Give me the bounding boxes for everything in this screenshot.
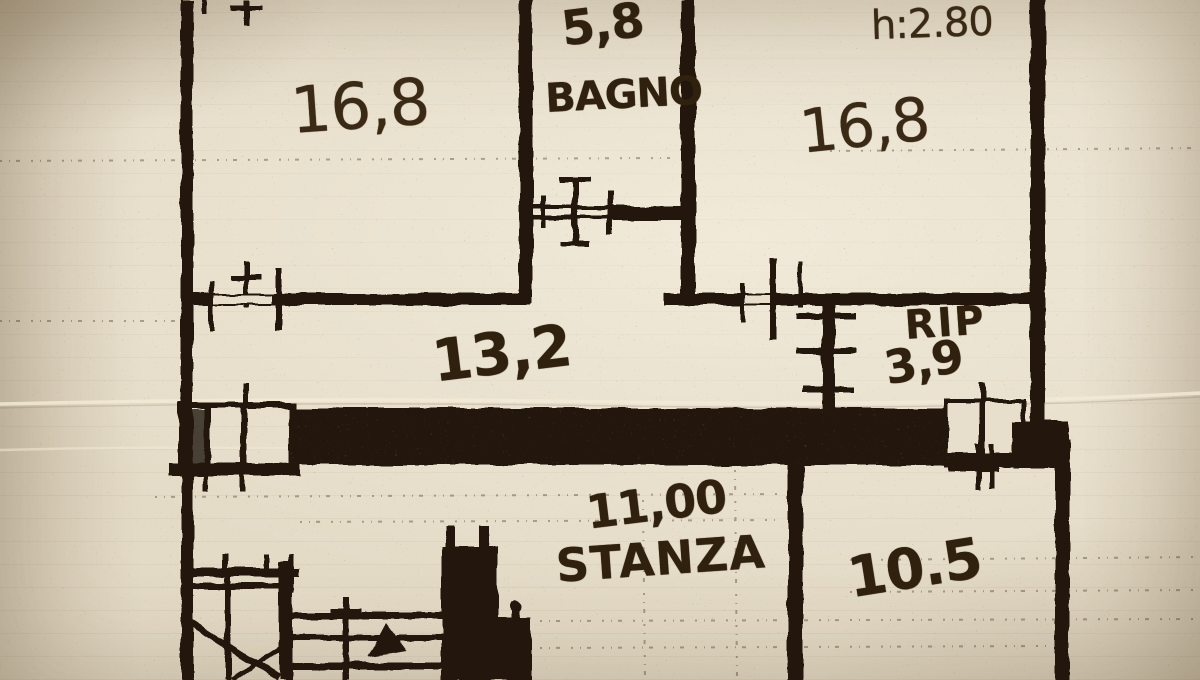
wall-bagno-right <box>681 0 695 304</box>
room-label-height-note: h:2.80 <box>870 0 994 51</box>
room-label-bagno-area: 5,8 <box>558 0 647 60</box>
wall-outer-right-lower <box>1055 446 1070 680</box>
room-label-top-right-area: 16,8 <box>796 82 933 170</box>
room-label-bagno-name: BAGNO <box>544 66 703 124</box>
room-label-top-left-area: 16,8 <box>288 62 432 151</box>
wall-outer-right-upper <box>1030 0 1045 452</box>
wall-stanza-right <box>788 453 803 680</box>
wall-bagno-left <box>519 0 533 304</box>
wall-bagno-bottom <box>610 206 688 220</box>
thick-wall-texture <box>285 403 955 469</box>
floor-plan-scan: 16,8 5,8 BAGNO h:2.80 16,8 13,2 RIP 3,9 … <box>0 0 1200 680</box>
